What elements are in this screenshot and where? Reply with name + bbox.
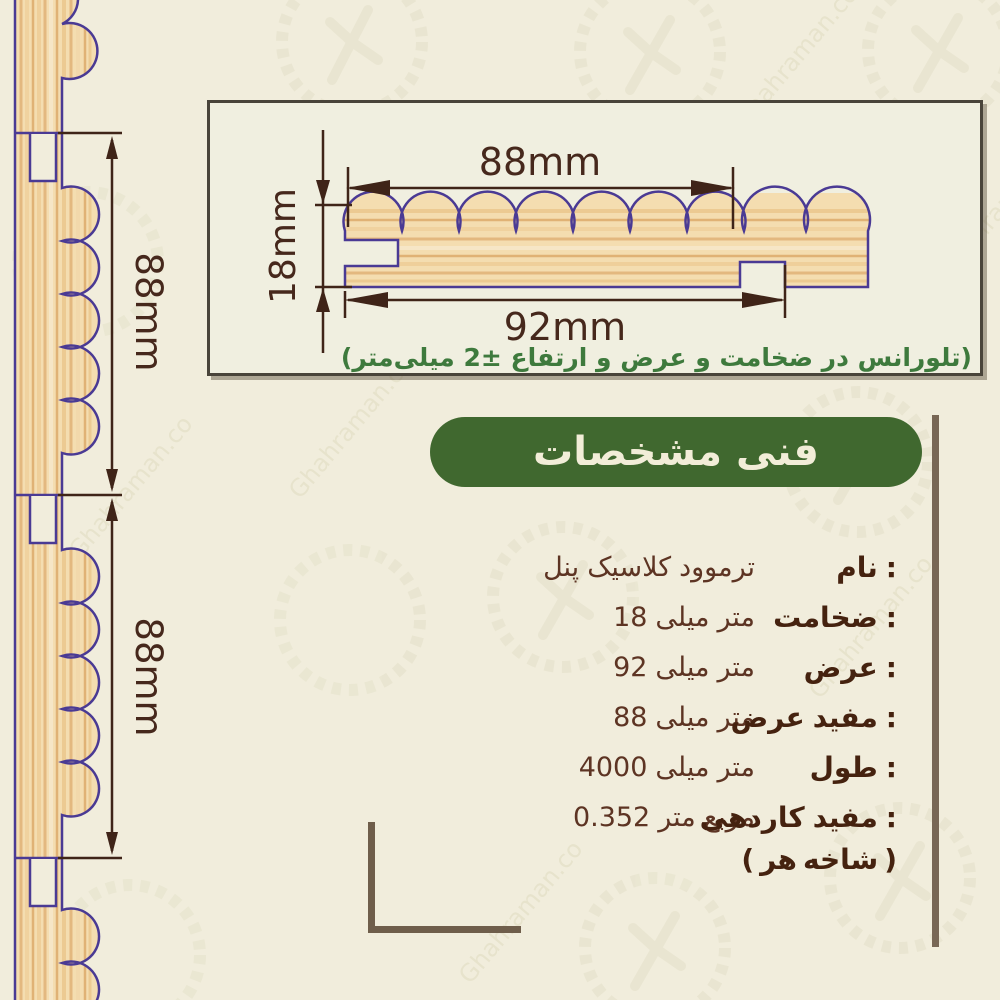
spec-label: کاردهیمفید: <box>700 793 897 843</box>
spec-row: 92میلیمترعرض: <box>370 643 897 693</box>
text-token: 4000 <box>579 743 648 793</box>
spec-label: ضخامت: <box>773 593 897 643</box>
text-token: میلی <box>655 743 709 793</box>
spec-list: پنلکلاسیکترموودنام:18میلیمترضخامت:92میلی… <box>370 0 897 1000</box>
text-token: میلی <box>655 593 709 643</box>
text-token: متر <box>658 793 696 843</box>
spec-label: عرضمفید: <box>730 693 897 743</box>
label-colon: : <box>886 593 897 643</box>
text-token: ضخامت <box>773 593 878 643</box>
text-token: ترموود <box>679 543 755 593</box>
text-token: ( <box>741 843 754 876</box>
panel-profile-vertical: 88mm 88mm <box>0 0 210 1000</box>
spec-row: پنلکلاسیکترموودنام: <box>370 543 897 593</box>
label-colon: : <box>886 643 897 693</box>
spec-label: طول: <box>810 743 897 793</box>
text-token: مفید <box>813 793 878 843</box>
label-colon: : <box>886 693 897 743</box>
spec-value: پنلکلاسیکترموود <box>543 543 755 593</box>
spec-row: 88میلیمترعرضمفید: <box>370 693 897 743</box>
vertical-divider <box>932 415 939 947</box>
profile-dim-label-2: 88mm <box>127 617 170 736</box>
text-token: کلاسیک <box>587 543 671 593</box>
thickness-label: 18mm <box>263 188 304 304</box>
text-token: مفید <box>813 693 878 743</box>
text-token: میلی <box>655 693 709 743</box>
text-token: عرض <box>804 643 878 693</box>
text-token: شاخه <box>803 843 878 876</box>
spec-row: 18میلیمترضخامت: <box>370 593 897 643</box>
spec-note: (هرشاخه) <box>741 843 897 876</box>
spec-value: 4000میلیمتر <box>579 743 755 793</box>
label-colon: : <box>886 793 897 843</box>
text-token: 0.352 <box>573 793 650 843</box>
text-token: متر <box>717 593 755 643</box>
profile-dim-label-1: 88mm <box>127 252 170 371</box>
text-token: 88 <box>613 693 647 743</box>
spec-label: عرض: <box>804 643 897 693</box>
text-token: متر <box>717 643 755 693</box>
label-colon: : <box>886 543 897 593</box>
text-token: متر <box>717 743 755 793</box>
text-token: کاردهی <box>700 793 805 843</box>
spec-value: 18میلیمتر <box>613 593 755 643</box>
label-colon: : <box>886 743 897 793</box>
text-token: 18 <box>613 593 647 643</box>
spec-value: 92میلیمتر <box>613 643 755 693</box>
text-token: ) <box>884 843 897 876</box>
spec-label: نام: <box>836 543 897 593</box>
text-token: پنل <box>543 543 579 593</box>
text-token: هر <box>760 843 797 876</box>
text-token: عرض <box>730 693 804 743</box>
text-token: طول <box>810 743 878 793</box>
text-token: 92 <box>613 643 647 693</box>
text-token: میلی <box>655 643 709 693</box>
text-token: نام <box>836 543 878 593</box>
infographic-page: { "watermark": { "text": "Ghahraman.co" … <box>0 0 1000 1000</box>
spec-row: 0.352مترمربعکاردهیمفید: <box>370 793 897 843</box>
spec-row: 4000میلیمترطول: <box>370 743 897 793</box>
